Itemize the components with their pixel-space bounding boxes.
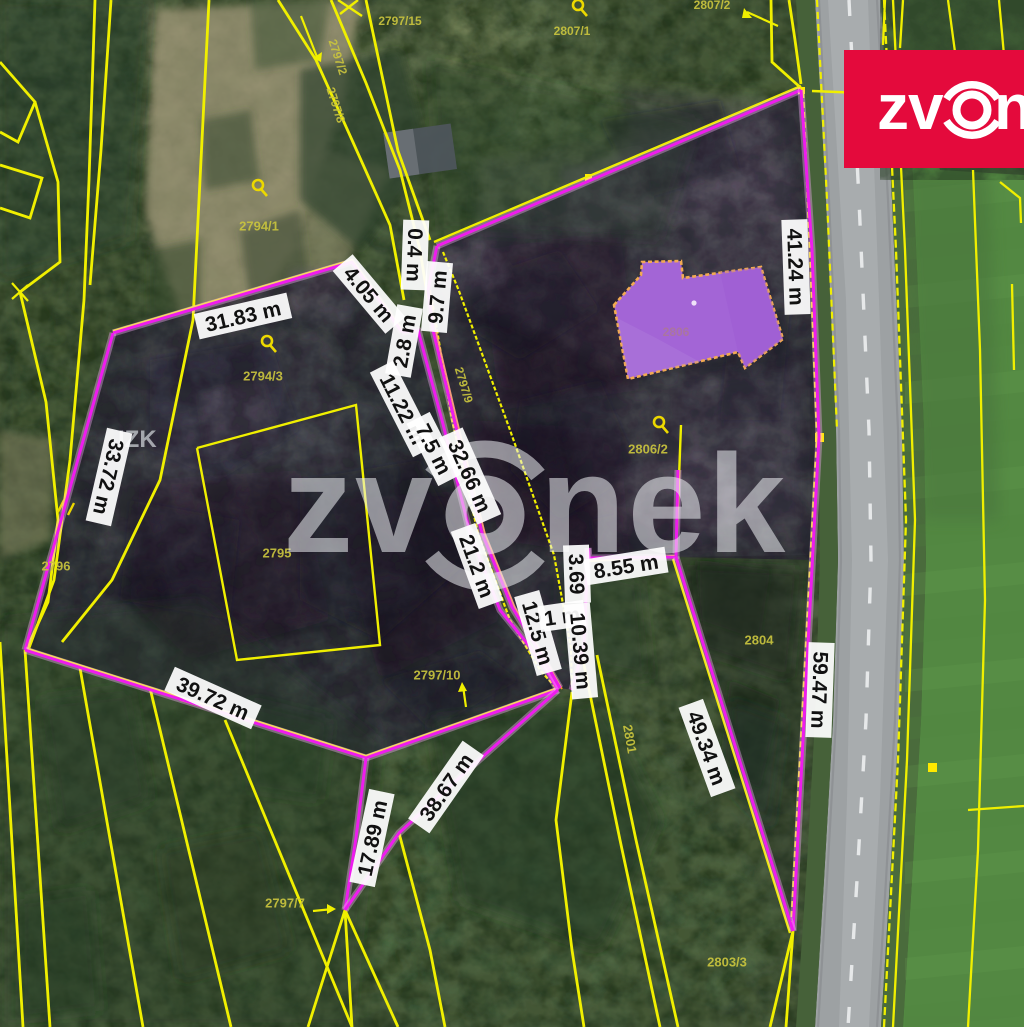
svg-text:0.4 m: 0.4 m [402,228,427,282]
svg-text:2797/10: 2797/10 [414,668,461,683]
svg-text:2797/7: 2797/7 [265,896,305,911]
svg-text:9.7 m: 9.7 m [424,269,452,325]
svg-text:41.24 m: 41.24 m [782,228,808,306]
svg-text:2807/1: 2807/1 [554,24,591,38]
svg-text:2797/15: 2797/15 [378,14,422,28]
svg-text:2803/3: 2803/3 [707,955,747,970]
svg-text:2807/2: 2807/2 [694,0,731,12]
svg-text:2794/3: 2794/3 [243,369,283,384]
svg-text:n: n [994,71,1024,143]
svg-text:59.47 m: 59.47 m [806,651,832,729]
svg-text:2804: 2804 [745,633,775,648]
svg-text:2806: 2806 [663,325,690,339]
svg-text:2794/1: 2794/1 [239,219,279,234]
svg-text:2796: 2796 [42,559,71,574]
svg-text:zv: zv [877,71,944,143]
